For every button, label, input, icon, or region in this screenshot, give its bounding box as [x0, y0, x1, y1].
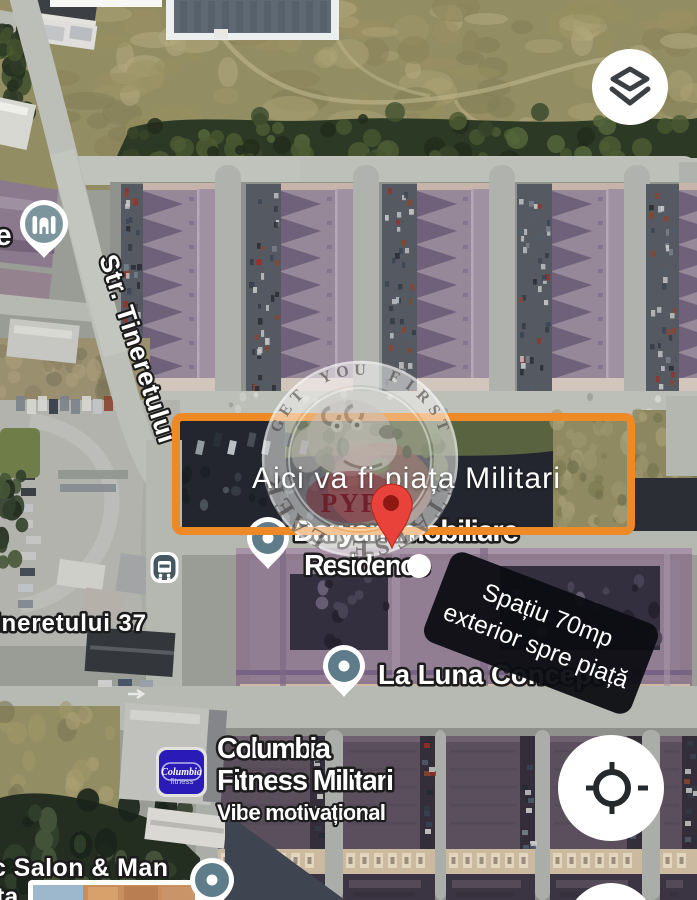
svg-text:c Salon & Man: c Salon & Man — [0, 854, 168, 882]
svg-text:Columbia: Columbia — [217, 733, 332, 765]
svg-text:U: U — [354, 362, 366, 379]
svg-text:ineretului 37: ineretului 37 — [0, 610, 146, 637]
svg-text:Vibe motivațional: Vibe motivațional — [217, 800, 386, 825]
svg-text:E: E — [352, 535, 369, 562]
svg-text:ta: ta — [0, 883, 19, 900]
svg-text:e: e — [0, 219, 12, 252]
svg-text:fitness: fitness — [170, 777, 193, 786]
svg-text:Fitness Militari: Fitness Militari — [217, 765, 394, 797]
